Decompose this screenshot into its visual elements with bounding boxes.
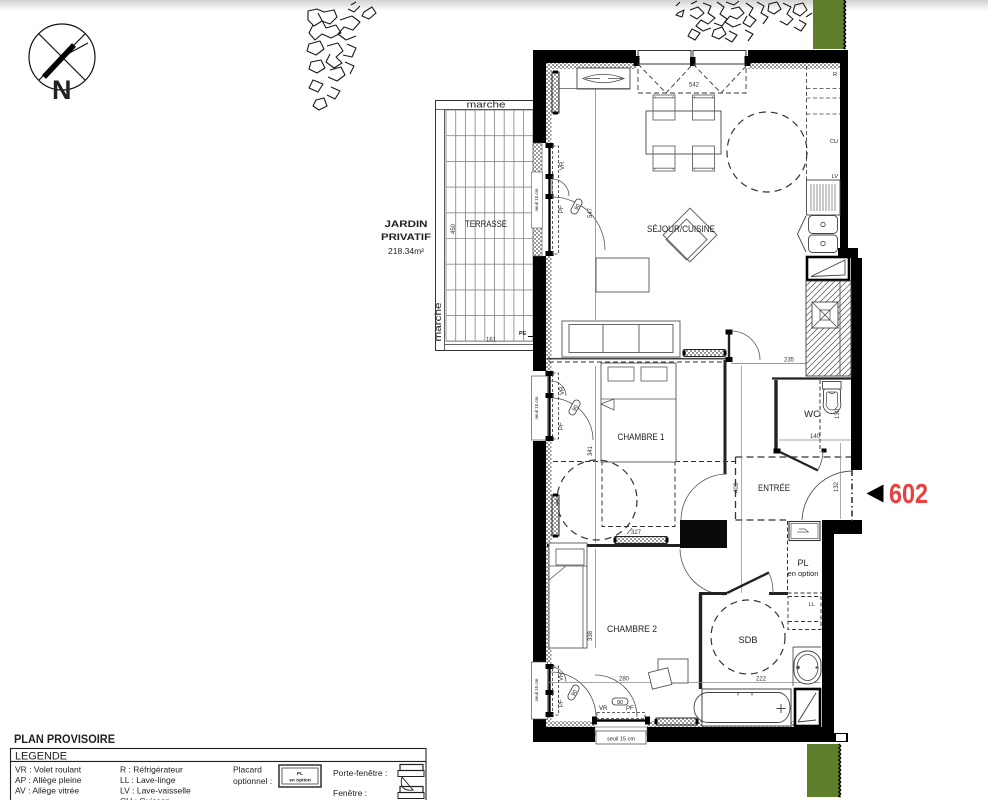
svg-text:Porte-fenêtre :: Porte-fenêtre :: [333, 768, 387, 778]
svg-text:LEGENDE: LEGENDE: [15, 751, 67, 763]
svg-text:PE: PE: [519, 331, 527, 337]
svg-text:WC: WC: [804, 409, 820, 420]
svg-text:PF: PF: [559, 205, 565, 213]
svg-text:JARDIN: JARDIN: [385, 219, 428, 229]
svg-text:seuil 15 cm: seuil 15 cm: [534, 396, 539, 419]
svg-text:90: 90: [617, 700, 623, 706]
svg-text:327: 327: [631, 530, 642, 536]
svg-text:542: 542: [689, 83, 700, 89]
svg-text:235: 235: [784, 358, 795, 364]
svg-text:LV : Lave-vaisselle: LV : Lave-vaisselle: [120, 786, 191, 796]
svg-text:338: 338: [588, 630, 594, 641]
svg-text:seuil 15 cm: seuil 15 cm: [534, 678, 539, 701]
svg-text:R : Réfrigérateur: R : Réfrigérateur: [120, 765, 183, 775]
svg-text:140: 140: [810, 434, 821, 440]
svg-text:132: 132: [834, 481, 840, 492]
svg-text:marche: marche: [433, 303, 444, 342]
svg-text:PF: PF: [626, 706, 634, 712]
svg-text:PL: PL: [297, 771, 303, 777]
svg-text:PLAN PROVISOIRE: PLAN PROVISOIRE: [14, 734, 115, 746]
svg-text:LL : Lave-linge: LL : Lave-linge: [120, 775, 176, 785]
svg-text:PL: PL: [797, 558, 808, 568]
svg-text:VR: VR: [560, 161, 566, 170]
svg-text:R: R: [833, 72, 837, 78]
svg-text:450: 450: [451, 223, 457, 234]
svg-text:seuil 15 cm: seuil 15 cm: [534, 188, 539, 211]
svg-text:CU : Cuisson: CU : Cuisson: [120, 796, 170, 800]
svg-text:CHAMBRE 1: CHAMBRE 1: [618, 432, 665, 443]
svg-text:N: N: [52, 75, 72, 105]
svg-text:ENTRÉE: ENTRÉE: [758, 483, 790, 494]
svg-text:PRIVATIF: PRIVATIF: [381, 232, 432, 242]
svg-text:PF: PF: [559, 422, 565, 430]
svg-text:seuil 15 cm: seuil 15 cm: [607, 737, 635, 743]
svg-text:PF: PF: [559, 699, 565, 707]
svg-text:218.34m²: 218.34m²: [388, 247, 424, 256]
svg-text:SÉJOUR/CUISINE: SÉJOUR/CUISINE: [647, 224, 715, 235]
svg-text:130: 130: [835, 408, 841, 419]
svg-text:Placard: Placard: [233, 765, 262, 775]
svg-text:LV: LV: [832, 174, 839, 180]
svg-text:341: 341: [588, 445, 594, 456]
svg-text:161: 161: [486, 338, 497, 344]
svg-text:280: 280: [619, 677, 630, 683]
svg-text:547: 547: [588, 207, 594, 218]
svg-text:AP : Allège pleine: AP : Allège pleine: [15, 775, 82, 785]
svg-text:VR : Volet roulant: VR : Volet roulant: [15, 765, 82, 775]
svg-text:LL: LL: [809, 602, 815, 608]
svg-text:en option: en option: [289, 778, 311, 784]
svg-text:optionnel :: optionnel :: [233, 776, 272, 786]
svg-text:VR: VR: [599, 706, 608, 712]
svg-text:en option: en option: [788, 569, 819, 578]
svg-text:CHAMBRE 2: CHAMBRE 2: [607, 624, 657, 635]
svg-text:Fenêtre :: Fenêtre :: [333, 788, 367, 798]
svg-text:VR: VR: [559, 672, 565, 681]
svg-text:AV : Allège vitrée: AV : Allège vitrée: [15, 786, 79, 796]
svg-text:VR: VR: [560, 386, 566, 395]
svg-text:602: 602: [889, 478, 928, 509]
svg-text:TERRASSE: TERRASSE: [465, 219, 507, 230]
svg-text:SDB: SDB: [739, 635, 758, 646]
svg-text:403: 403: [734, 482, 740, 493]
svg-text:CU: CU: [830, 139, 838, 145]
svg-text:marche: marche: [467, 100, 506, 111]
svg-text:222: 222: [756, 677, 767, 683]
